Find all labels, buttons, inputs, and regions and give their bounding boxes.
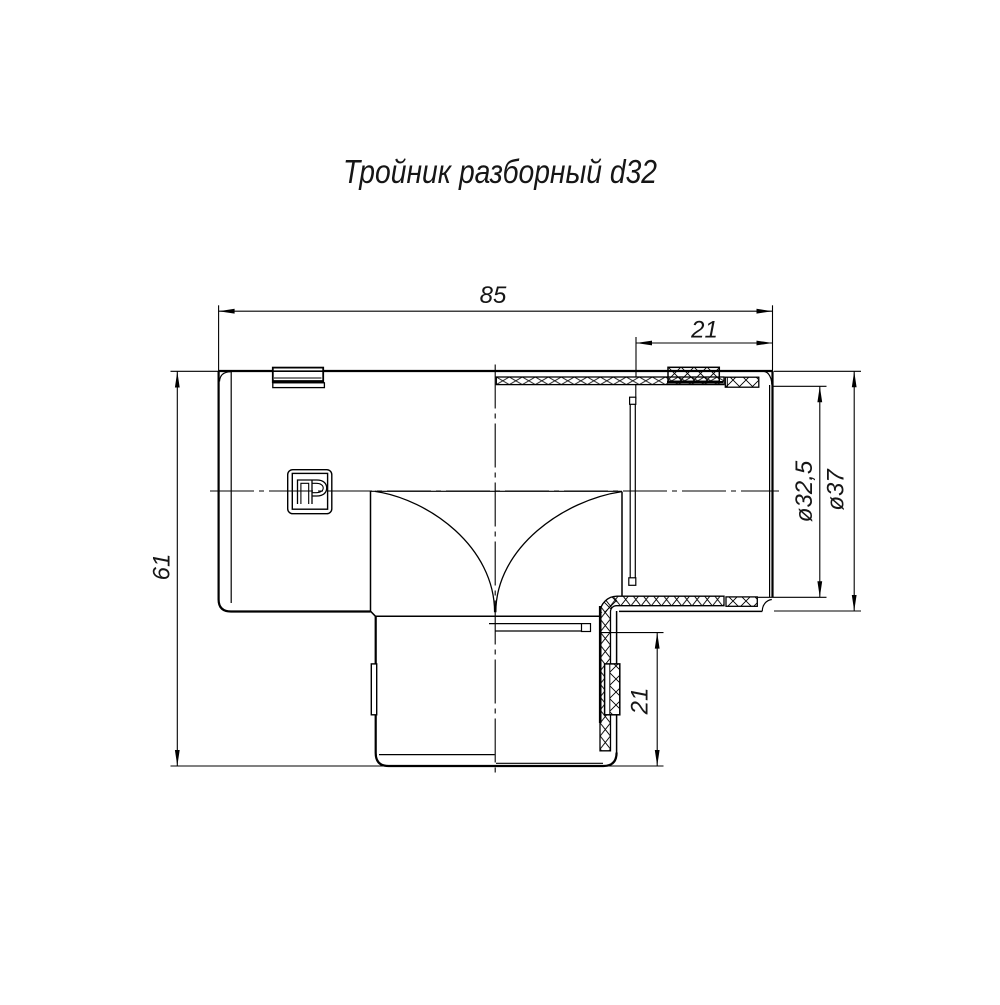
svg-text:ø32,5: ø32,5 [791, 460, 818, 522]
svg-text:21: 21 [690, 317, 718, 344]
svg-text:61: 61 [149, 554, 176, 581]
svg-text:ø37: ø37 [823, 468, 850, 511]
svg-text:85: 85 [480, 282, 507, 309]
svg-text:Тройник разборный d32: Тройник разборный d32 [343, 153, 657, 191]
svg-text:21: 21 [627, 688, 654, 716]
